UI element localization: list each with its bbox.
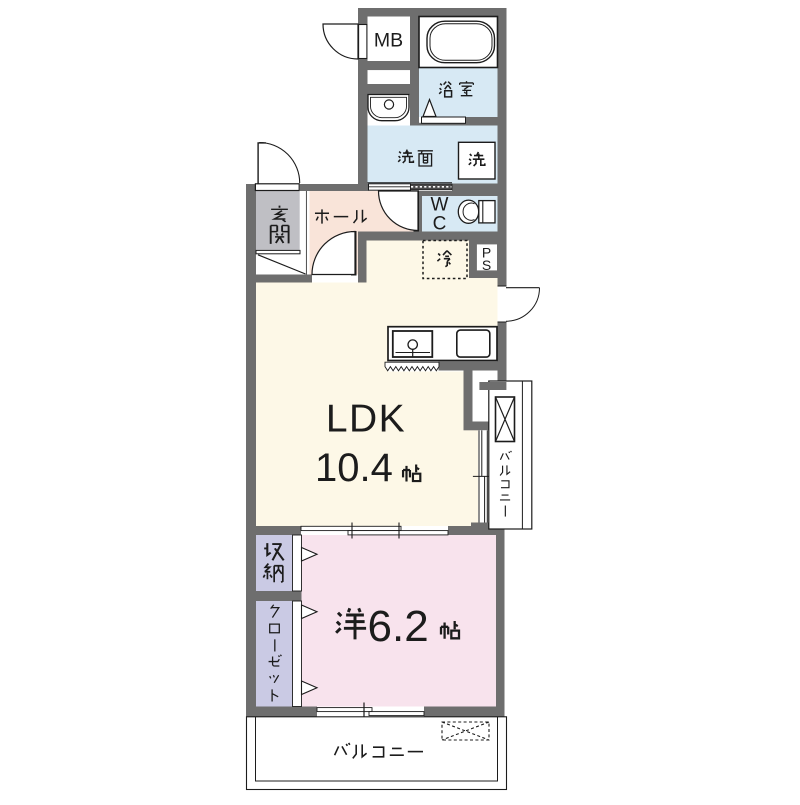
- svg-text:W: W: [431, 195, 449, 216]
- svg-text:S: S: [482, 257, 491, 273]
- svg-text:6.2: 6.2: [368, 602, 429, 651]
- svg-text:LDK: LDK: [326, 398, 406, 441]
- svg-text:10.4: 10.4: [315, 446, 393, 490]
- svg-text:MB: MB: [374, 29, 403, 51]
- svg-text:C: C: [433, 214, 447, 235]
